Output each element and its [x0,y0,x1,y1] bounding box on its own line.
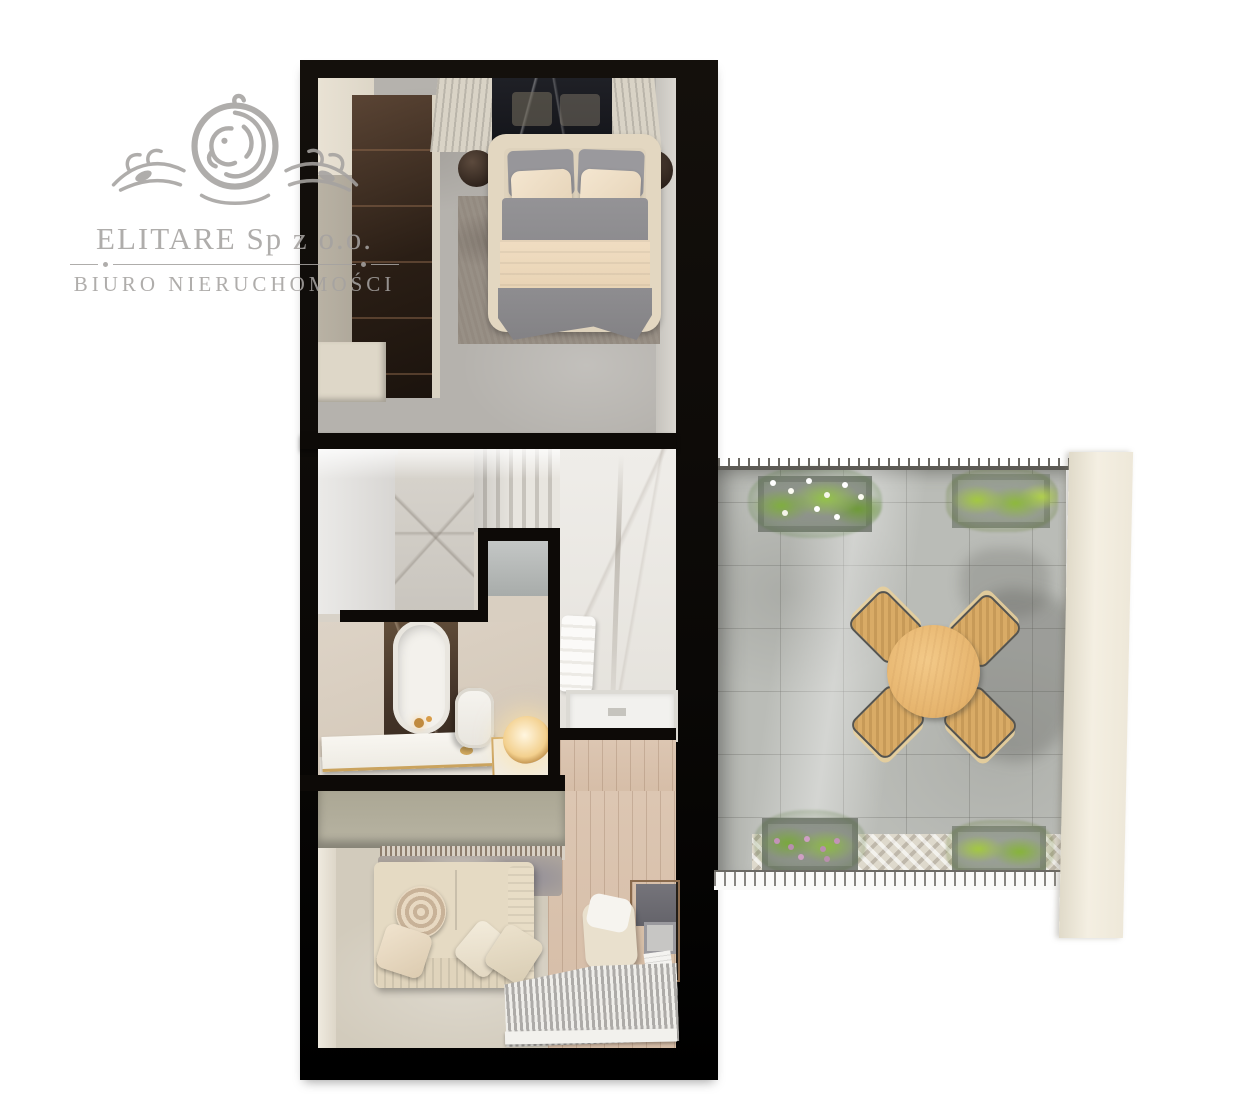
neighbor-wall-panel [1059,452,1133,938]
laptop [644,922,676,954]
planter-bottom-left-plants [754,810,866,876]
terrace-railing-top-bar [718,466,1086,470]
planter-top-right-plants [946,468,1058,532]
wall-middle-living [300,775,565,791]
wall-bathroom-mid [340,610,488,622]
sideboard [318,791,565,848]
marble-pillow-reflection [560,94,600,126]
floorplan-render: ELITARE Sp z o.o. BIURO NIERUCHOMOŚCI [0,0,1254,1116]
glow-table-lamp [503,716,551,764]
watermark-subtitle: BIURO NIERUCHOMOŚCI [62,272,407,297]
stairs-ceiling-light [318,449,574,479]
headboard-rib-panel-left [430,78,498,152]
planter-bottom-left-flowers [774,838,780,844]
bathtub-faucet-gold [414,718,424,728]
wall-bedroom-middle [300,433,676,449]
planter-top-left-plants [748,466,882,538]
watermark-company: ELITARE Sp z o.o. [62,222,407,256]
shower-drain [608,708,626,716]
bathroom-mirror-ledge [488,596,548,622]
marble-pillow-reflection [512,92,552,126]
round-dining-table [887,625,980,718]
wall-bathroom-east [548,528,560,778]
bed-duvet-top [502,198,648,242]
bathroom-mirror [488,540,548,596]
bathtub [393,620,450,734]
wall-bathroom-west [478,528,488,622]
wall-bathroom-north [478,528,558,541]
sofa-back-seam [455,870,457,930]
planter-top-left-flowers [770,480,776,486]
desk-top-gray [636,884,676,926]
towel [558,615,596,693]
watermark: ELITARE Sp z o.o. BIURO NIERUCHOMOŚCI [62,88,407,318]
lion-crest-icon [62,88,407,220]
wall-shower-south [548,728,676,740]
watermark-divider [70,262,399,267]
toilet [455,688,494,748]
wardrobe-bottom-step [318,342,386,402]
bed-blanket-band [500,240,650,290]
terrace-railing-bottom [714,872,1068,886]
